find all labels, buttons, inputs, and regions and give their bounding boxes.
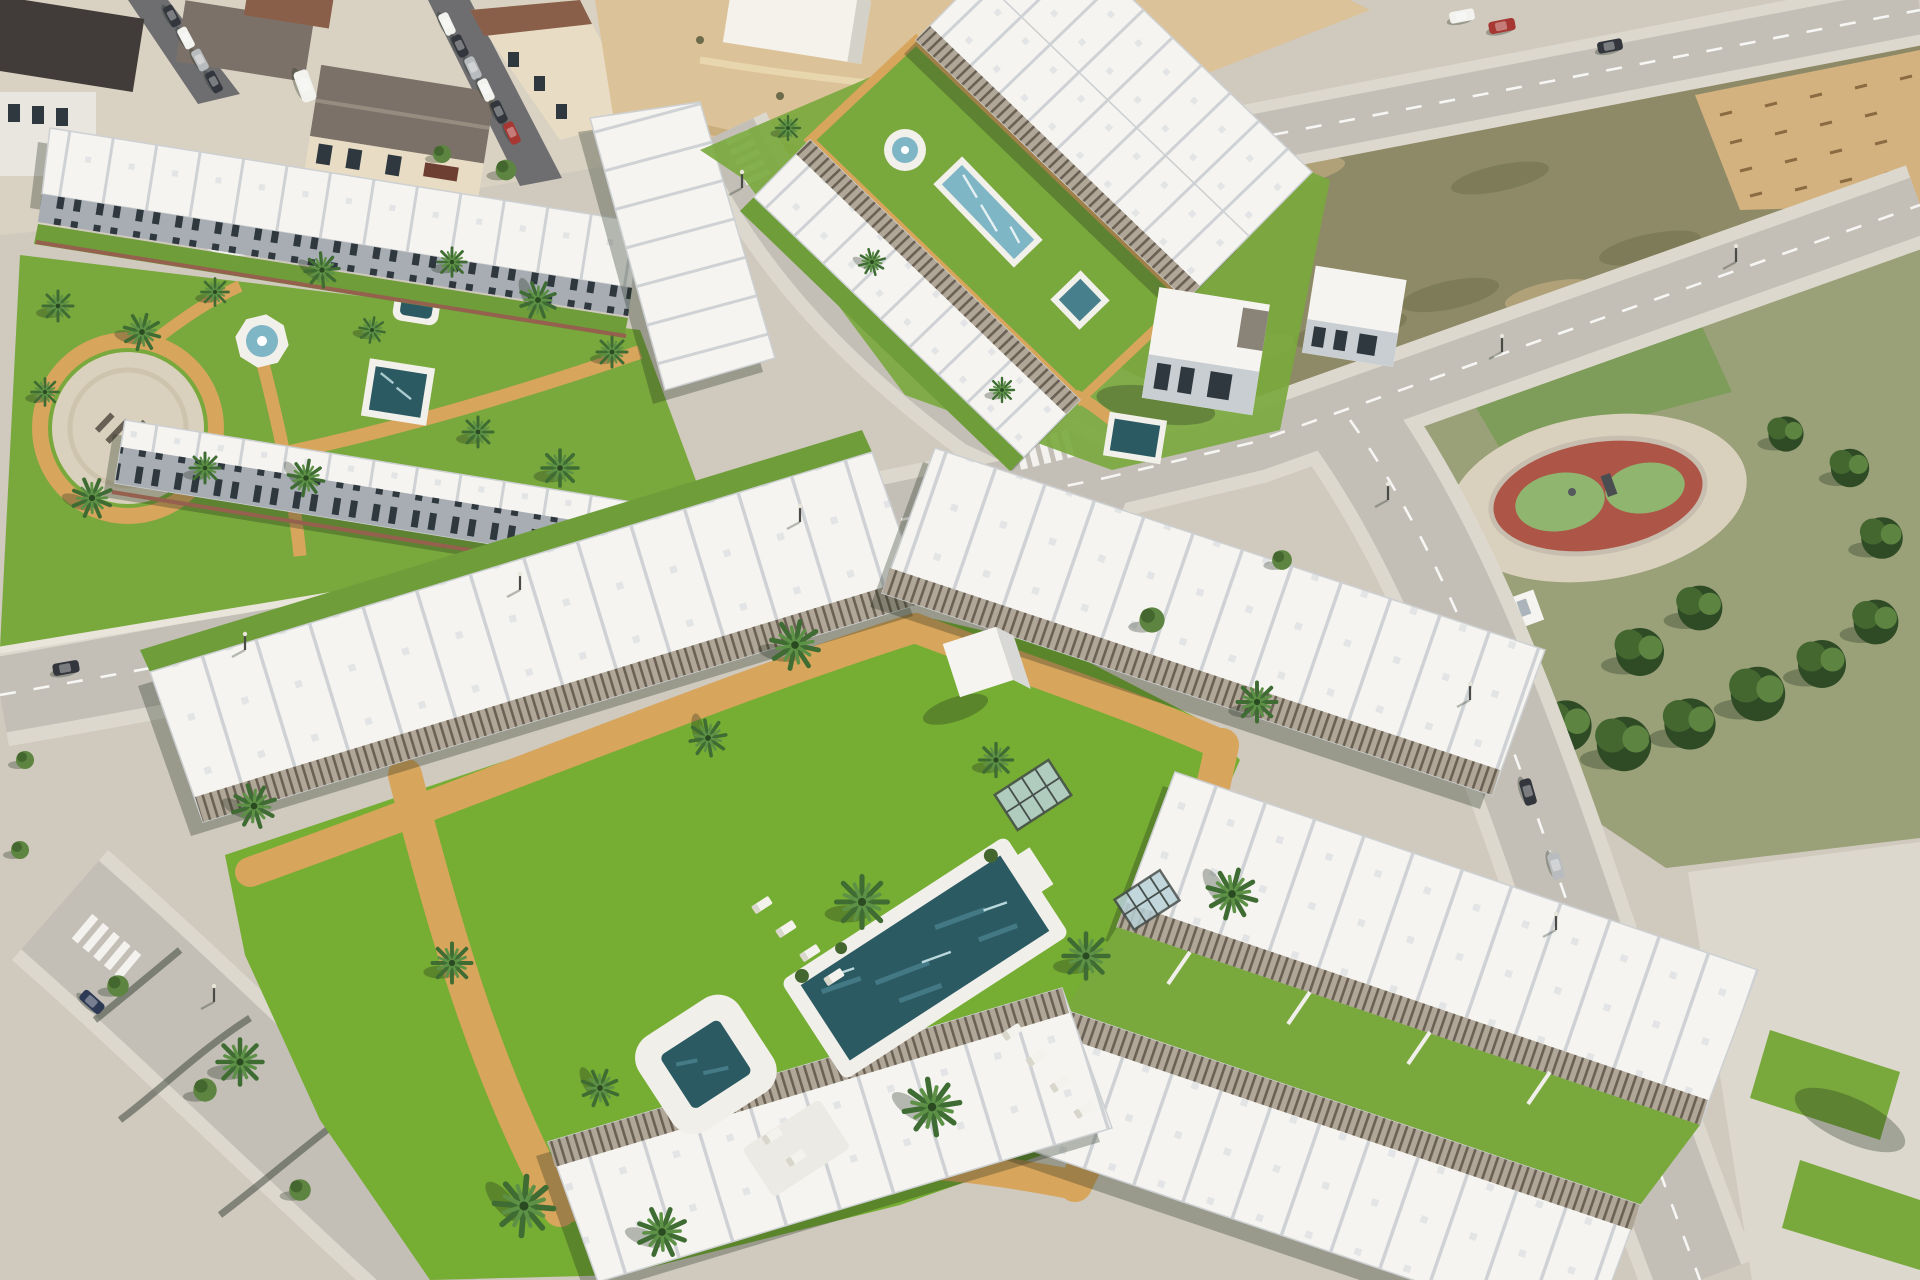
garden-fountain (884, 129, 926, 171)
aerial-render-image (0, 0, 1920, 1280)
villa-pool (1103, 412, 1167, 465)
villa (1302, 266, 1407, 367)
square-pool (361, 358, 435, 426)
scene-root (0, 0, 1920, 1280)
